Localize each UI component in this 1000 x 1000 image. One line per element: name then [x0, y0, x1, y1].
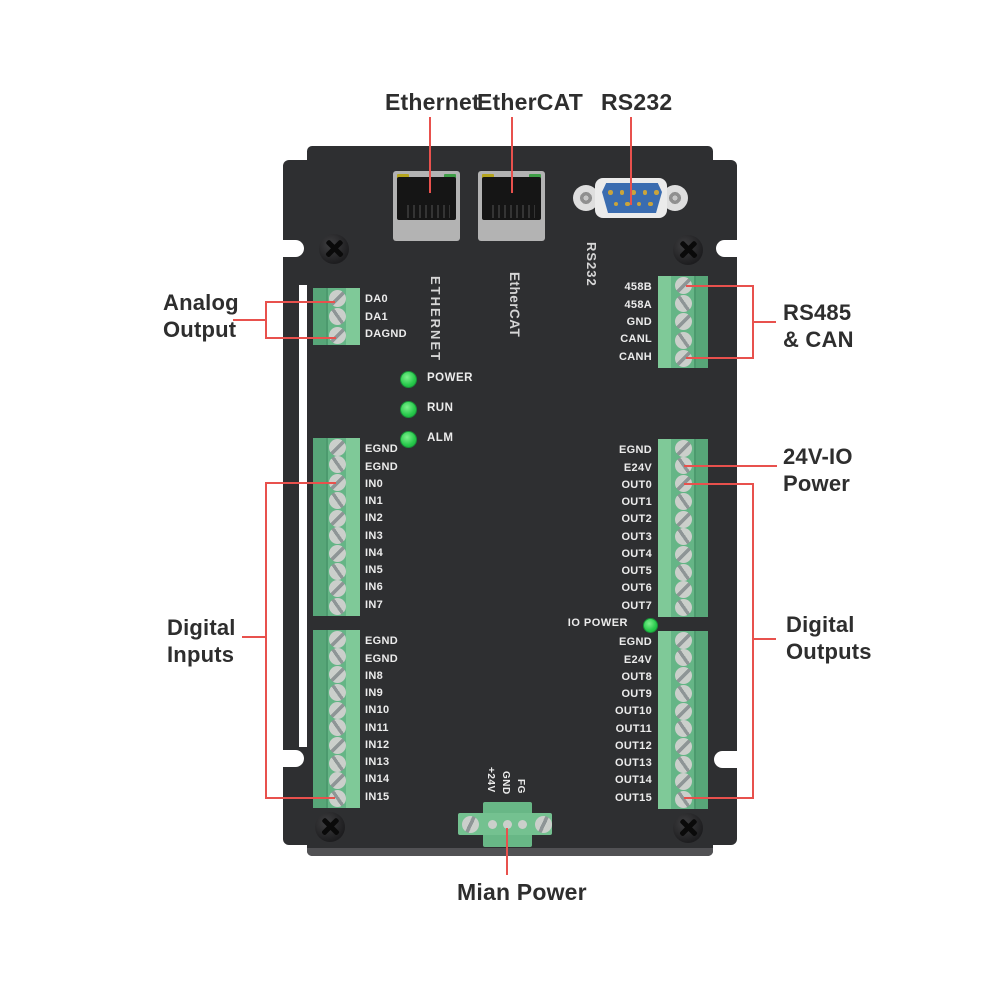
terminal-label: IN14 — [365, 773, 398, 785]
power-screw — [462, 816, 479, 833]
annotation-line-rs232 — [630, 117, 632, 205]
terminal-screw — [675, 546, 692, 563]
terminal-label: DA1 — [365, 311, 407, 323]
db9-right-jackscrew — [668, 191, 682, 205]
terminal-screw — [675, 773, 692, 790]
terminal-label: IN4 — [365, 547, 398, 559]
annotation-line-outputs — [753, 638, 776, 640]
terminal-screw — [675, 599, 692, 616]
power-led — [400, 371, 417, 388]
terminal-label: EGND — [588, 636, 652, 648]
terminal-screw — [329, 772, 346, 789]
terminal-screw — [675, 295, 692, 312]
case-screw-top-left — [319, 234, 349, 264]
rs485-terminal-screws — [675, 276, 692, 368]
outputs1-terminal-labels: EGND E24V OUT0 OUT1 OUT2 OUT3 OUT4 OUT5 … — [588, 439, 652, 617]
power-pin-label-24v: +24V — [485, 767, 496, 793]
terminal-label: CANL — [588, 333, 652, 345]
inputs2-terminal-labels: EGND EGND IN8 IN9 IN10 IN11 IN12 IN13 IN… — [365, 630, 398, 808]
terminal-label: CANH — [588, 351, 652, 363]
terminal-screw — [329, 308, 346, 325]
terminal-label: EGND — [365, 653, 398, 665]
terminal-screw — [329, 563, 346, 580]
callout-ethernet: Ethernet — [385, 89, 480, 116]
terminal-screw — [329, 456, 346, 473]
callout-line: Analog — [163, 289, 239, 316]
run-led — [400, 401, 417, 418]
analog-terminal-labels: DA0 DA1 DAGND — [365, 288, 407, 345]
terminal-label: IN15 — [365, 791, 398, 803]
terminal-label: OUT3 — [588, 531, 652, 543]
terminal-label: OUT6 — [588, 582, 652, 594]
ethernet-port — [393, 171, 460, 241]
terminal-label: EGND — [365, 461, 398, 473]
annotation-line-outputs — [684, 797, 753, 799]
db9-pin — [614, 202, 619, 207]
terminal-screw — [675, 581, 692, 598]
run-led-label: RUN — [427, 402, 453, 414]
terminal-screw — [675, 649, 692, 666]
ethernet-port-opening — [397, 177, 456, 220]
inputs1-terminal-screws — [329, 438, 346, 616]
terminal-label: OUT1 — [588, 496, 652, 508]
terminal-label: OUT11 — [588, 723, 652, 735]
terminal-screw — [675, 667, 692, 684]
terminal-label: IN13 — [365, 756, 398, 768]
terminal-label: EGND — [588, 444, 652, 456]
terminal-screw — [329, 439, 346, 456]
db9-pin — [637, 202, 642, 207]
annotation-line-rs485 — [686, 285, 754, 287]
callout-line: Digital — [786, 611, 872, 638]
terminal-label: IN3 — [365, 530, 398, 542]
terminal-screw — [675, 332, 692, 349]
terminal-label: GND — [588, 316, 652, 328]
case-screw-top-right — [673, 235, 703, 265]
terminal-label: DA0 — [365, 293, 407, 305]
terminal-label: E24V — [588, 654, 652, 666]
annotation-line-rs485 — [686, 357, 754, 359]
inputs2-terminal-screws — [329, 630, 346, 808]
annotation-line-ethernet — [429, 117, 431, 193]
alm-led — [400, 431, 417, 448]
terminal-label: OUT15 — [588, 792, 652, 804]
terminal-screw — [329, 666, 346, 683]
terminal-label: IN11 — [365, 722, 398, 734]
terminal-label: OUT13 — [588, 757, 652, 769]
callout-rs485-can: RS485 & CAN — [783, 299, 854, 353]
rs232-connector — [573, 178, 701, 220]
terminal-label: IN9 — [365, 687, 398, 699]
db9-left-jackscrew — [579, 191, 593, 205]
terminal-label: OUT9 — [588, 688, 652, 700]
terminal-screw — [675, 720, 692, 737]
right-mounting-wing — [710, 160, 737, 845]
terminal-screw — [329, 580, 346, 597]
bottom-edge-highlight — [307, 848, 713, 856]
annotation-line-24v-io — [684, 465, 777, 467]
callout-line: Output — [163, 316, 239, 343]
silkscreen-ethernet: ETHERNET — [428, 276, 443, 362]
annotation-line-analog — [265, 301, 267, 339]
terminal-screw — [675, 528, 692, 545]
annotation-line-inputs — [265, 482, 336, 484]
terminal-screw — [675, 756, 692, 773]
terminal-screw — [329, 510, 346, 527]
terminal-label: IN2 — [365, 512, 398, 524]
case-screw-bottom-left — [315, 812, 345, 842]
annotation-line-outputs — [752, 483, 754, 799]
annotation-line-ethercat — [511, 117, 513, 193]
terminal-label: OUT7 — [588, 600, 652, 612]
power-pin-label-fg: FG — [515, 779, 526, 794]
mounting-slot-top-right — [716, 240, 740, 257]
callout-line: & CAN — [783, 326, 854, 353]
terminal-label: OUT12 — [588, 740, 652, 752]
db9-pin — [608, 190, 613, 195]
alm-led-label: ALM — [427, 432, 453, 444]
callout-24v-io-power: 24V-IO Power — [783, 443, 853, 497]
io-power-label: IO POWER — [550, 617, 628, 629]
callout-digital-inputs: Digital Inputs — [167, 614, 236, 668]
terminal-label: 458B — [588, 281, 652, 293]
terminal-label: OUT5 — [588, 565, 652, 577]
terminal-screw — [329, 492, 346, 509]
outputs2-terminal-screws — [675, 631, 692, 809]
silkscreen-ethercat: EtherCAT — [507, 272, 522, 337]
callout-line: 24V-IO — [783, 443, 853, 470]
terminal-screw — [329, 598, 346, 615]
annotation-line-rs485 — [754, 321, 776, 323]
power-screw — [535, 816, 552, 833]
annotation-line-analog — [265, 337, 336, 339]
terminal-screw — [329, 648, 346, 665]
terminal-screw — [329, 527, 346, 544]
terminal-label: IN0 — [365, 478, 398, 490]
annotation-line-analog — [265, 301, 335, 303]
terminal-screw — [675, 313, 692, 330]
terminal-screw — [675, 685, 692, 702]
terminal-screw — [329, 631, 346, 648]
power-pin — [488, 820, 497, 829]
db9-pin — [625, 202, 630, 207]
terminal-label: OUT0 — [588, 479, 652, 491]
power-led-label: POWER — [427, 372, 473, 384]
terminal-screw — [675, 440, 692, 457]
terminal-screw — [329, 755, 346, 772]
db9-pin — [643, 190, 648, 195]
callout-line: Outputs — [786, 638, 872, 665]
terminal-label: EGND — [365, 443, 398, 455]
annotation-line-outputs — [684, 483, 754, 485]
terminal-label: DAGND — [365, 328, 407, 340]
terminal-screw — [675, 703, 692, 720]
db9-face — [602, 183, 662, 213]
terminal-screw — [675, 564, 692, 581]
annotation-line-inputs — [265, 797, 335, 799]
terminal-label: E24V — [588, 462, 652, 474]
mounting-slot-bottom-left — [280, 750, 304, 767]
terminal-screw — [329, 684, 346, 701]
outputs2-terminal-labels: EGND E24V OUT8 OUT9 OUT10 OUT11 OUT12 OU… — [588, 631, 652, 809]
terminal-label: OUT10 — [588, 705, 652, 717]
controller-diagram: ETHERNET EtherCAT RS232 POWER RUN ALM DA… — [0, 0, 1000, 1000]
callout-digital-outputs: Digital Outputs — [786, 611, 872, 665]
case-screw-bottom-right — [673, 813, 703, 843]
terminal-screw — [675, 493, 692, 510]
terminal-label: EGND — [365, 635, 398, 647]
callout-main-power: Mian Power — [457, 879, 587, 906]
annotation-line-inputs — [242, 636, 266, 638]
annotation-line-main-power — [506, 828, 508, 875]
callout-line: Power — [783, 470, 853, 497]
terminal-label: IN10 — [365, 704, 398, 716]
terminal-label: OUT4 — [588, 548, 652, 560]
rs485-terminal-labels: 458B 458A GND CANL CANH — [588, 276, 652, 368]
callout-analog-output: Analog Output — [163, 289, 239, 343]
terminal-label: IN7 — [365, 599, 398, 611]
annotation-line-inputs — [265, 482, 267, 799]
terminal-screw — [675, 632, 692, 649]
terminal-label: OUT14 — [588, 774, 652, 786]
callout-line: Digital — [167, 614, 236, 641]
terminal-screw — [675, 738, 692, 755]
terminal-label: IN5 — [365, 564, 398, 576]
terminal-screw — [329, 290, 346, 307]
callout-line: RS485 — [783, 299, 854, 326]
terminal-screw — [675, 791, 692, 808]
db9-pin — [654, 190, 659, 195]
terminal-screw — [329, 702, 346, 719]
terminal-screw — [329, 545, 346, 562]
terminal-label: IN8 — [365, 670, 398, 682]
callout-rs232: RS232 — [601, 89, 672, 116]
terminal-label: OUT2 — [588, 513, 652, 525]
mounting-slot-top-left — [280, 240, 304, 257]
terminal-screw — [329, 327, 346, 344]
power-pin — [518, 820, 527, 829]
db9-pin — [648, 202, 653, 207]
inputs1-terminal-labels: EGND EGND IN0 IN1 IN2 IN3 IN4 IN5 IN6 IN… — [365, 438, 398, 616]
terminal-screw — [329, 719, 346, 736]
terminal-label: IN1 — [365, 495, 398, 507]
power-pin-label-gnd: GND — [500, 771, 511, 795]
db9-pin — [620, 190, 625, 195]
terminal-label: 458A — [588, 299, 652, 311]
callout-line: Inputs — [167, 641, 236, 668]
mounting-slot-bottom-right — [714, 751, 738, 768]
terminal-screw — [329, 737, 346, 754]
terminal-label: OUT8 — [588, 671, 652, 683]
terminal-label: IN6 — [365, 581, 398, 593]
terminal-label: IN12 — [365, 739, 398, 751]
callout-ethercat: EtherCAT — [477, 89, 583, 116]
terminal-screw — [675, 511, 692, 528]
